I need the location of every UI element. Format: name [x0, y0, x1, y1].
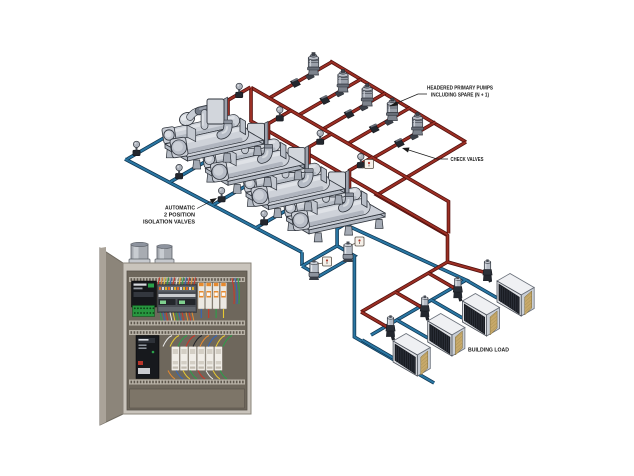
svg-text:INCLUDING SPARE (N + 1): INCLUDING SPARE (N + 1): [431, 93, 489, 99]
svg-text:ISOLATION VALVES: ISOLATION VALVES: [143, 220, 195, 226]
svg-text:2 POSITION: 2 POSITION: [164, 213, 195, 219]
svg-text:BUILDING LOAD: BUILDING LOAD: [468, 348, 509, 354]
svg-text:CHECK VALVES: CHECK VALVES: [451, 157, 484, 163]
svg-text:HEADERED PRIMARY PUMPS: HEADERED PRIMARY PUMPS: [427, 86, 493, 92]
svg-text:AUTOMATIC: AUTOMATIC: [165, 206, 196, 212]
